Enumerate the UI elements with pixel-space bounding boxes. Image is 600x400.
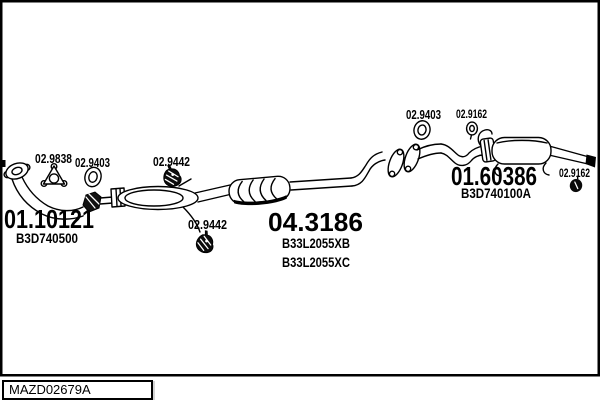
part-label-hanger-rear-inlet: 02.9162 [456, 109, 487, 121]
part-label-hanger-centre-2: 02.9442 [188, 217, 227, 232]
exhaust-diagram: 02.9838 02.9403 02.9442 02.9442 01.10121… [0, 0, 600, 378]
oe-number-centre-muffler-1: B33L2055XB [282, 235, 350, 251]
part-label-ring-gasket-rear: 02.9403 [406, 107, 441, 122]
oe-number-rear-muffler: B3D740100A [461, 185, 531, 201]
part-label-hanger-centre-1: 02.9442 [153, 154, 190, 169]
oe-number-centre-muffler-2: B33L2055XC [282, 254, 350, 270]
drawing-code: MAZD02679A [9, 382, 91, 397]
part-label-gasket-front: 02.9838 [35, 151, 72, 166]
oe-number-front-pipe: B3D740500 [16, 230, 78, 246]
part-label-ring-gasket-front: 02.9403 [75, 155, 110, 170]
part-label-hanger-tailpipe: 02.9162 [559, 168, 590, 180]
part-number-centre-muffler: 04.3186 [268, 209, 363, 237]
frame-tick [0, 160, 6, 167]
drawing-code-box: MAZD02679A [2, 380, 153, 400]
